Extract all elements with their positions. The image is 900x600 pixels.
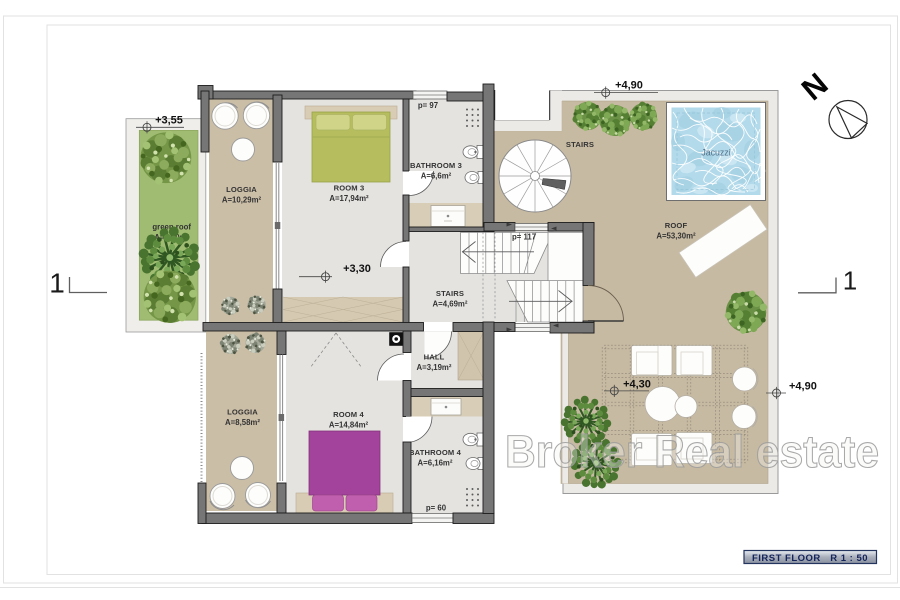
svg-text:STAIRS: STAIRS — [436, 289, 464, 298]
svg-text:A=10,29m²: A=10,29m² — [222, 196, 262, 205]
svg-text:LOGGIA: LOGGIA — [226, 185, 257, 194]
svg-text:HALL: HALL — [424, 353, 445, 362]
svg-text:STAIRS: STAIRS — [566, 140, 594, 149]
svg-text:A=53,30m²: A=53,30m² — [656, 232, 696, 241]
svg-text:A=14,84m²: A=14,84m² — [329, 421, 369, 430]
svg-text:+3,30: +3,30 — [343, 263, 371, 275]
svg-text:+4,30: +4,30 — [623, 378, 651, 390]
svg-text:A=4,69m²: A=4,69m² — [433, 300, 468, 309]
svg-text:p= 60: p= 60 — [426, 504, 447, 513]
svg-text:p= 97: p= 97 — [418, 101, 438, 110]
svg-text:Broker Real estate: Broker Real estate — [505, 426, 879, 477]
svg-text:ROOF: ROOF — [665, 221, 688, 230]
svg-text:BATHROOM 3: BATHROOM 3 — [410, 161, 462, 170]
svg-text:A=6,16m²: A=6,16m² — [418, 459, 453, 468]
svg-text:+4,90: +4,90 — [615, 80, 643, 92]
svg-text:A=3,19m²: A=3,19m² — [417, 363, 452, 372]
svg-text:BATHROOM 4: BATHROOM 4 — [409, 448, 462, 457]
svg-text:1: 1 — [843, 266, 857, 296]
svg-text:ROOM 4: ROOM 4 — [333, 410, 364, 419]
svg-text:+3,55: +3,55 — [155, 115, 183, 127]
svg-text:A=17,94m²: A=17,94m² — [329, 194, 369, 203]
svg-text:ROOM 3: ROOM 3 — [334, 184, 365, 193]
svg-text:Jacuzzi: Jacuzzi — [701, 148, 730, 158]
svg-text:FIRST FLOOR R 1 : 50: FIRST FLOOR R 1 : 50 — [752, 553, 868, 564]
svg-text:A=8,58m²: A=8,58m² — [225, 418, 260, 427]
svg-text:p= 117: p= 117 — [512, 233, 536, 242]
svg-text:1: 1 — [49, 268, 65, 299]
svg-text:LOGGIA: LOGGIA — [227, 408, 258, 417]
svg-text:+4,90: +4,90 — [789, 381, 817, 393]
svg-text:A=6,6m²: A=6,6m² — [421, 172, 452, 181]
